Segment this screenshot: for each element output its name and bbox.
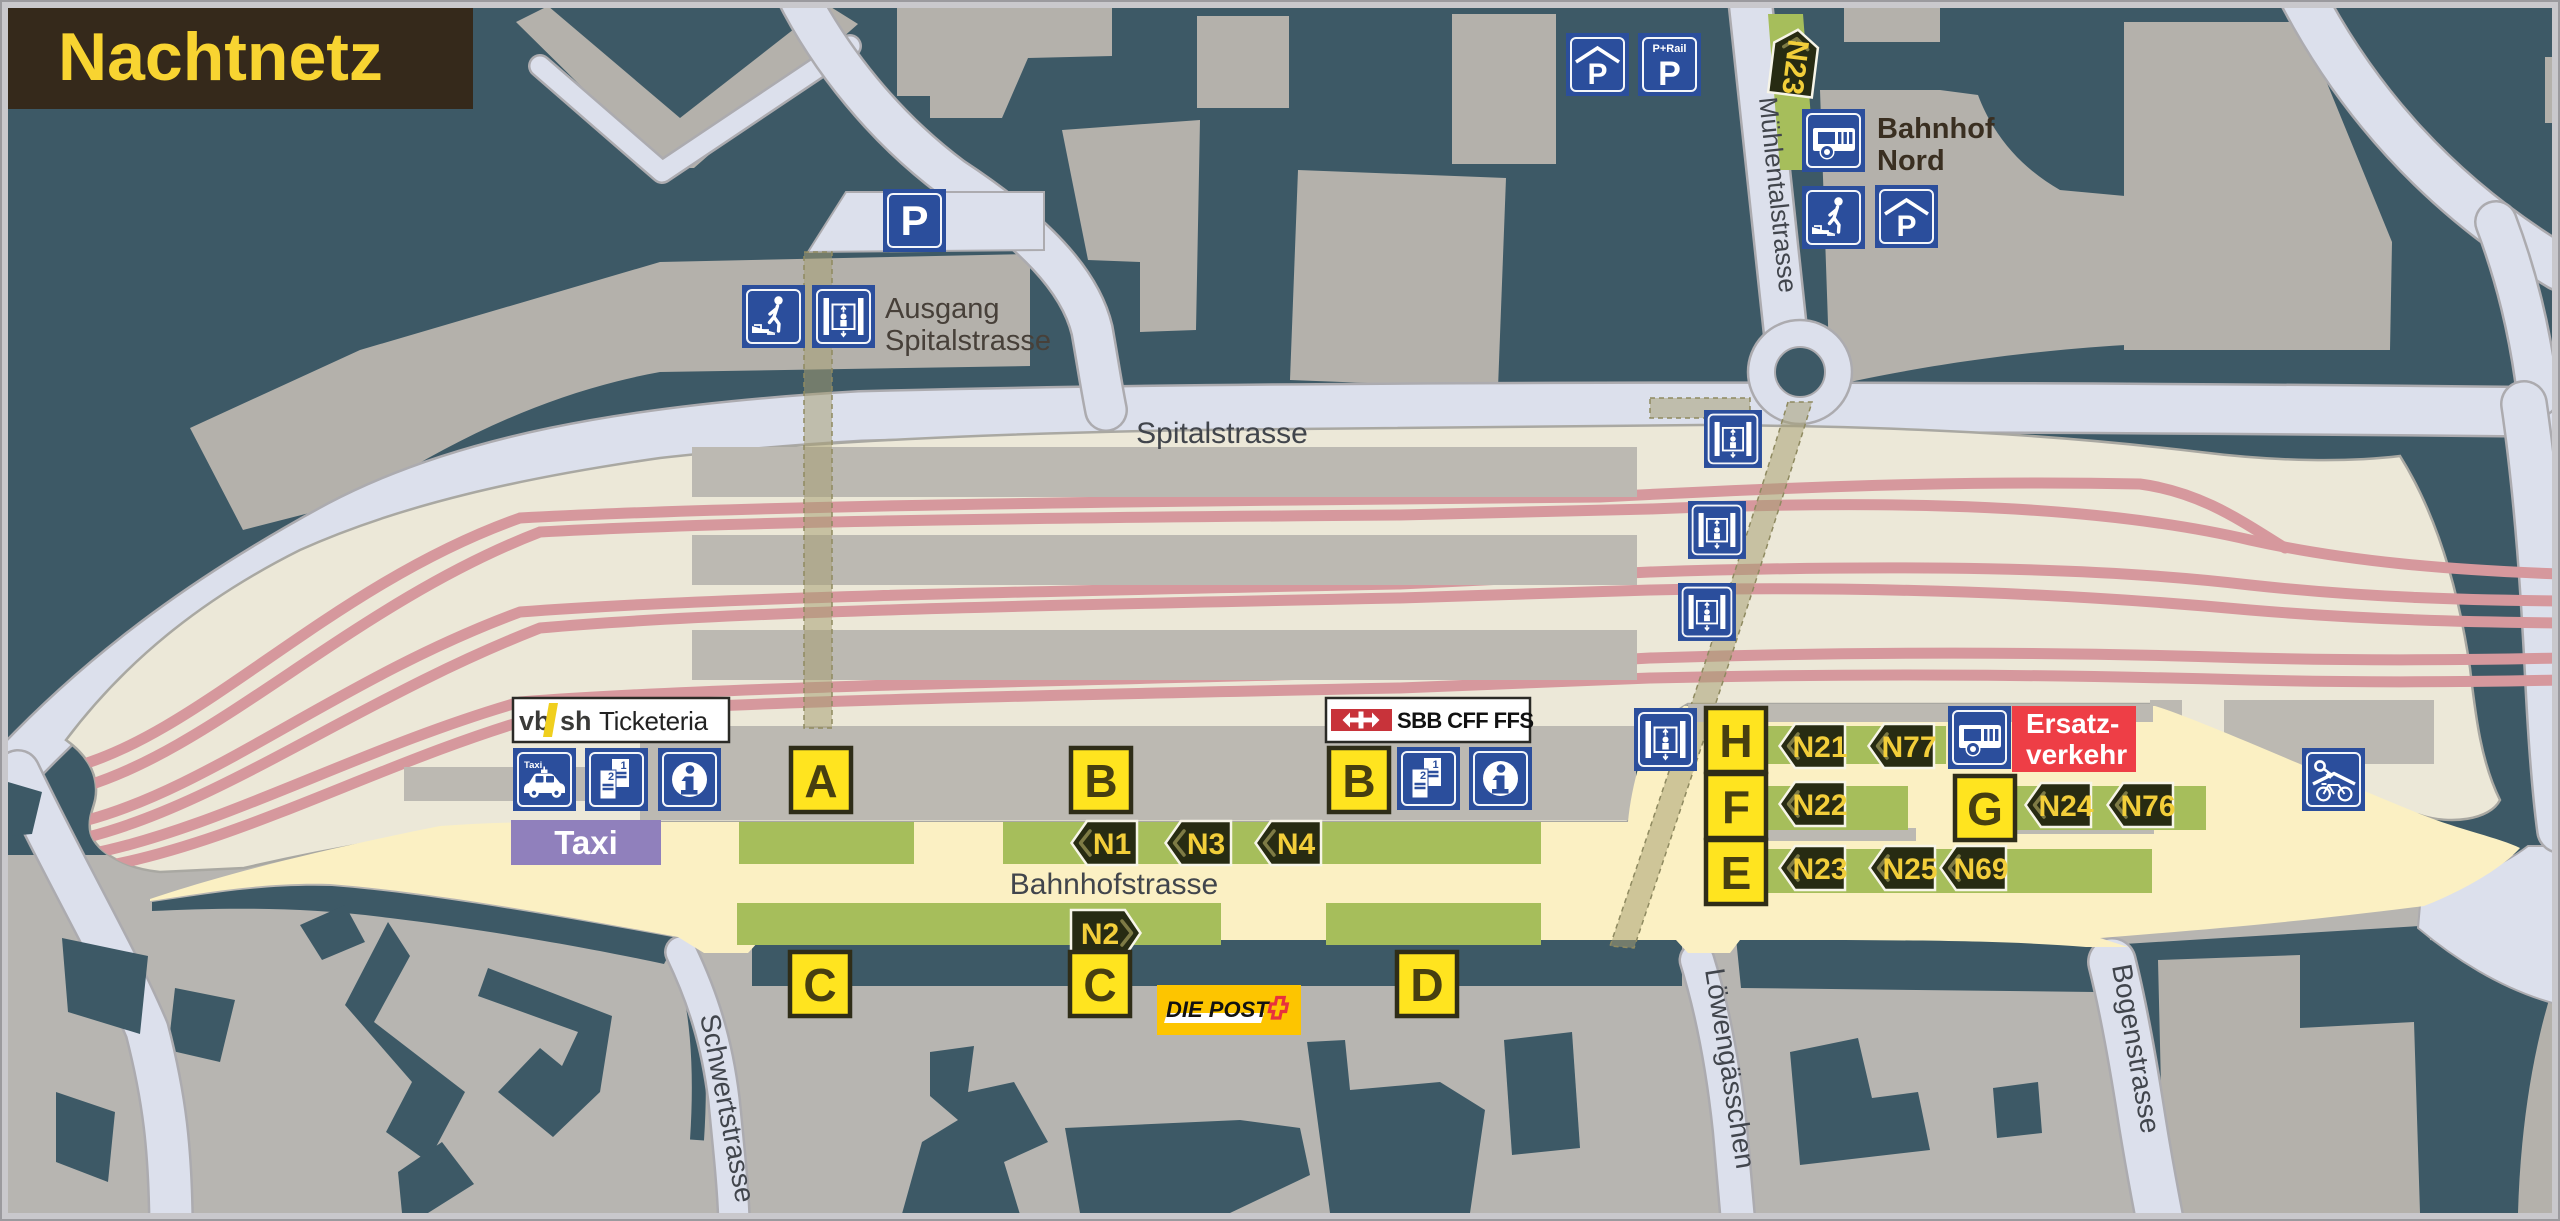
svg-text:Nord: Nord: [1877, 145, 1945, 177]
svg-text:N76: N76: [2120, 790, 2175, 823]
svg-text:N23: N23: [1792, 853, 1847, 886]
svg-text:N2: N2: [1081, 918, 1119, 951]
svg-text:E: E: [1721, 847, 1752, 899]
svg-text:SBB CFF FFS: SBB CFF FFS: [1397, 708, 1533, 733]
svg-text:Ticketeria: Ticketeria: [599, 706, 709, 736]
svg-text:G: G: [1967, 783, 2003, 835]
svg-text:verkehr: verkehr: [2026, 739, 2127, 770]
svg-text:N24: N24: [2038, 790, 2093, 823]
svg-text:N1: N1: [1093, 828, 1131, 861]
svg-text:N21: N21: [1792, 731, 1847, 764]
svg-text:C: C: [803, 959, 836, 1011]
svg-text:D: D: [1410, 959, 1443, 1011]
svg-text:Bahnhof: Bahnhof: [1877, 113, 1995, 145]
svg-text:N23: N23: [1775, 38, 1814, 97]
svg-text:N69: N69: [1953, 853, 2008, 886]
svg-text:Spitalstrasse: Spitalstrasse: [885, 325, 1051, 357]
svg-text:A: A: [804, 755, 837, 807]
svg-text:B: B: [1342, 755, 1375, 807]
svg-text:sh: sh: [560, 706, 592, 736]
svg-text:N3: N3: [1187, 828, 1225, 861]
svg-text:N22: N22: [1792, 789, 1847, 822]
svg-text:Taxi: Taxi: [554, 824, 618, 861]
svg-text:N4: N4: [1277, 828, 1316, 861]
svg-text:Spitalstrasse: Spitalstrasse: [1136, 417, 1308, 450]
svg-text:DIE POST: DIE POST: [1166, 997, 1270, 1022]
svg-text:H: H: [1719, 715, 1752, 767]
svg-text:Ersatz-: Ersatz-: [2026, 708, 2119, 739]
svg-text:Ausgang: Ausgang: [885, 293, 1000, 325]
svg-text:B: B: [1084, 755, 1117, 807]
svg-text:Nachtnetz: Nachtnetz: [58, 19, 383, 95]
svg-text:F: F: [1722, 781, 1750, 833]
svg-text:N25: N25: [1882, 853, 1937, 886]
svg-text:C: C: [1083, 959, 1116, 1011]
svg-text:N77: N77: [1881, 731, 1936, 764]
svg-text:Bahnhofstrasse: Bahnhofstrasse: [1010, 868, 1218, 901]
